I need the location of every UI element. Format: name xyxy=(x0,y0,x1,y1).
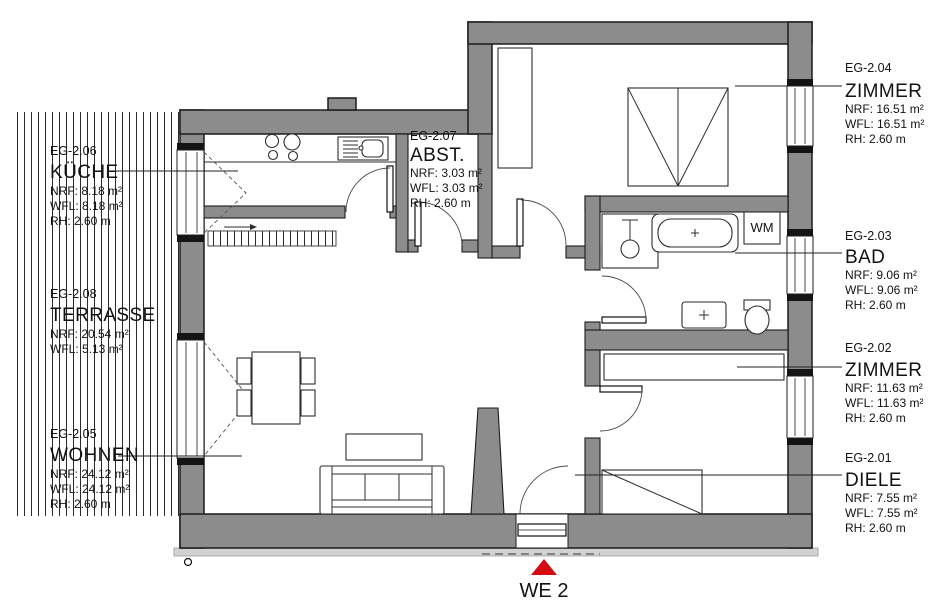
room-name: BAD xyxy=(845,247,885,268)
room-name: ABST. xyxy=(410,145,465,166)
room-nrf: NRF: 8.18 m² xyxy=(50,184,122,198)
room-wfl: WFL: 16.51 m² xyxy=(845,117,924,131)
double-bed-icon xyxy=(628,88,728,186)
room-wfl: WFL: 11.63 m² xyxy=(845,396,923,410)
furniture-bad: WM xyxy=(602,212,780,334)
toilet-icon xyxy=(744,300,770,334)
single-bed-icon xyxy=(602,470,702,514)
bathtub-icon xyxy=(652,214,738,252)
window-bad xyxy=(787,229,813,301)
stove-icon xyxy=(266,134,301,161)
room-rh: RH: 2.60 m xyxy=(845,521,906,535)
room-label-zimmer-202: EG-2.02 ZIMMER NRF: 11.63 m² WFL: 11.63 … xyxy=(845,341,923,425)
door-kueche xyxy=(346,166,393,212)
coffee-table-icon xyxy=(346,434,422,460)
floor-plan-page: WM WE 2 EG-2.06 xyxy=(0,0,939,609)
window-zimmer-202 xyxy=(787,369,813,445)
room-code: EG-2.02 xyxy=(845,341,892,355)
room-name: WOHNEN xyxy=(50,445,139,466)
washbasin-icon xyxy=(682,302,726,328)
room-nrf: NRF: 20.54 m² xyxy=(50,327,129,341)
room-label-abstellraum: EG-2.07 ABST. NRF: 3.03 m² WFL: 3.03 m² … xyxy=(410,129,483,210)
furniture-wohnen xyxy=(208,224,444,514)
furniture-zimmer-204 xyxy=(498,48,728,186)
room-wfl: WFL: 24.12 m² xyxy=(50,482,129,496)
room-rh: RH: 2.60 m xyxy=(50,214,111,228)
dining-table-icon xyxy=(237,352,315,424)
room-nrf: NRF: 16.51 m² xyxy=(845,102,924,116)
window-zimmer-204 xyxy=(787,79,813,153)
drain-marker-icon xyxy=(185,559,192,566)
unit-label: WE 2 xyxy=(520,580,569,602)
room-code: EG-2.04 xyxy=(845,61,892,75)
room-rh: RH: 2.60 m xyxy=(845,411,906,425)
sofa-icon xyxy=(320,466,444,514)
floor-plan-canvas: WM WE 2 EG-2.06 xyxy=(0,0,939,609)
room-label-zimmer-204: EG-2.04 ZIMMER NRF: 16.51 m² WFL: 16.51 … xyxy=(845,61,924,146)
room-nrf: NRF: 9.06 m² xyxy=(845,268,917,282)
radiator-icon xyxy=(208,224,336,246)
kitchen-counter xyxy=(204,134,396,162)
room-code: EG-2.08 xyxy=(50,287,97,301)
washing-machine-icon: WM xyxy=(744,212,780,244)
shower-icon xyxy=(602,214,658,268)
room-name: ZIMMER xyxy=(845,360,922,381)
room-name: TERRASSE xyxy=(50,305,156,326)
room-nrf: NRF: 24.12 m² xyxy=(50,467,129,481)
wardrobe-icon xyxy=(498,48,532,168)
room-label-diele: EG-2.01 DIELE NRF: 7.55 m² WFL: 7.55 m² … xyxy=(845,451,918,535)
room-rh: RH: 2.60 m xyxy=(845,298,906,312)
room-nrf: NRF: 7.55 m² xyxy=(845,491,917,505)
room-wfl: WFL: 3.03 m² xyxy=(410,181,483,195)
entrance-marker: WE 2 xyxy=(520,559,569,602)
washing-machine-label: WM xyxy=(750,220,773,235)
room-nrf: NRF: 11.63 m² xyxy=(845,381,923,395)
entrance-triangle-icon xyxy=(531,559,557,575)
room-code: EG-2.07 xyxy=(410,129,457,143)
room-code: EG-2.05 xyxy=(50,427,97,441)
room-rh: RH: 2.60 m xyxy=(845,132,906,146)
room-label-bad: EG-2.03 BAD NRF: 9.06 m² WFL: 9.06 m² RH… xyxy=(845,229,918,312)
room-wfl: WFL: 5.13 m² xyxy=(50,342,123,356)
room-code: EG-2.06 xyxy=(50,144,97,158)
room-code: EG-2.01 xyxy=(845,451,892,465)
room-rh: RH: 2.60 m xyxy=(410,196,471,210)
room-rh: RH: 2.60 m xyxy=(50,497,111,511)
room-name: DIELE xyxy=(845,470,902,491)
room-wfl: WFL: 7.55 m² xyxy=(845,506,918,520)
room-nrf: NRF: 3.03 m² xyxy=(410,166,482,180)
door-bad xyxy=(602,276,646,323)
door-zimmer-202 xyxy=(600,386,642,431)
room-wfl: WFL: 9.06 m² xyxy=(845,283,918,297)
room-wfl: WFL: 8.18 m² xyxy=(50,199,123,213)
room-name: KÜCHE xyxy=(50,162,119,183)
sink-icon xyxy=(338,137,388,160)
room-code: EG-2.03 xyxy=(845,229,892,243)
room-name: ZIMMER xyxy=(845,81,922,102)
furniture-zimmer-202 xyxy=(602,354,784,514)
door-zimmer-204 xyxy=(517,199,566,246)
